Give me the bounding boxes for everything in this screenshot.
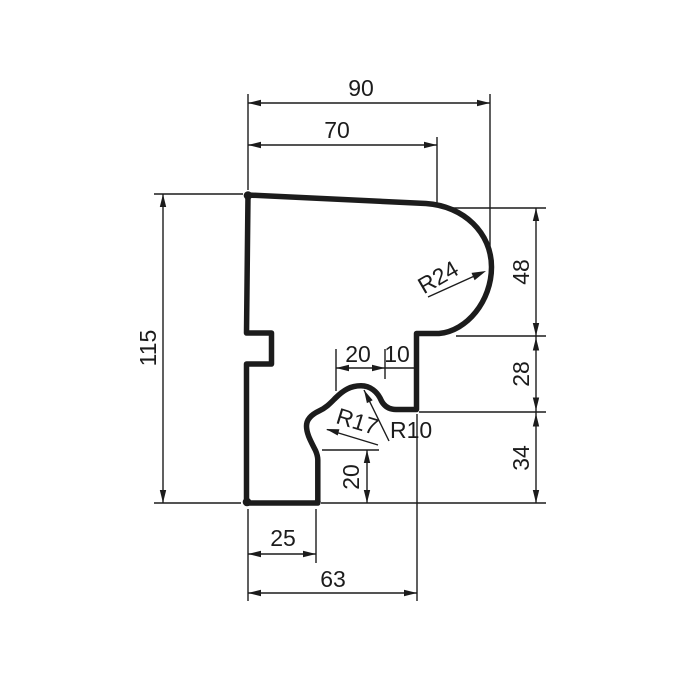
corner-dot-bottom-step [314,499,320,505]
arrowhead [533,398,539,411]
dim-28-label: 28 [508,361,534,387]
arrowhead [160,490,166,503]
arrowhead [533,414,539,427]
arrowhead [248,100,261,106]
dim-70-label: 70 [324,117,350,143]
technical-drawing: 90 70 115 48 28 34 20 10 20 25 63 R24 R1… [0,0,686,686]
dim-63-label: 63 [320,566,346,592]
arrowhead [160,194,166,207]
arrowhead-r17 [326,429,339,436]
arrowhead [248,142,261,148]
arrowhead [533,323,539,336]
dim-48-label: 48 [508,259,534,285]
arrowhead [477,100,490,106]
arrowhead [364,490,370,503]
arrowhead [533,490,539,503]
arrowhead [303,551,316,557]
arrowhead [533,338,539,351]
corner-dot-bottom-left [243,498,252,507]
arrowhead [404,590,417,596]
dim-34-label: 34 [508,445,534,471]
arrowhead [424,142,437,148]
dim-25-label: 25 [270,525,296,551]
arrowhead [364,450,370,463]
arrowhead [248,590,261,596]
dim-10-step-label: 10 [384,341,410,367]
drawing-canvas: 90 70 115 48 28 34 20 10 20 25 63 R24 R1… [0,0,686,686]
arrowhead [248,551,261,557]
arrowhead-r10 [364,390,373,403]
dim-115-label: 115 [135,330,161,367]
corner-dot-top-left [244,191,253,200]
radius-r10-label: R10 [390,417,432,443]
arrowhead [533,208,539,221]
dim-90-label: 90 [348,75,374,101]
dim-20-bump-label: 20 [345,341,371,367]
radius-r17-label: R17 [333,403,381,440]
dim-20-foot-label: 20 [338,464,364,490]
